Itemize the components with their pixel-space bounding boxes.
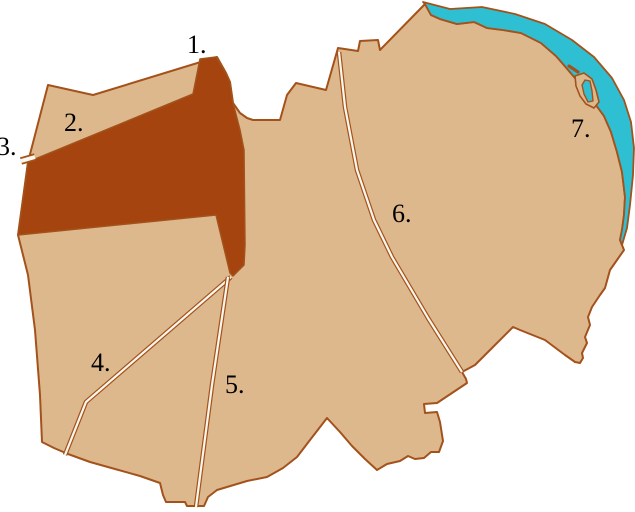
quarter-label-7: 7. (571, 114, 591, 143)
quarter-label-3: 3. (0, 132, 17, 161)
quarter-label-6: 6. (392, 199, 412, 228)
quarter-label-4: 4. (91, 348, 111, 377)
map-stage: 1. 2. 3. 4. 5. 6. 7. (0, 0, 635, 512)
district-map-canvas: 1. 2. 3. 4. 5. 6. 7. (0, 0, 635, 512)
quarter-label-1: 1. (187, 30, 207, 59)
district-outline (18, 4, 625, 506)
quarter-label-5: 5. (225, 370, 245, 399)
quarter-label-2: 2. (64, 108, 84, 137)
